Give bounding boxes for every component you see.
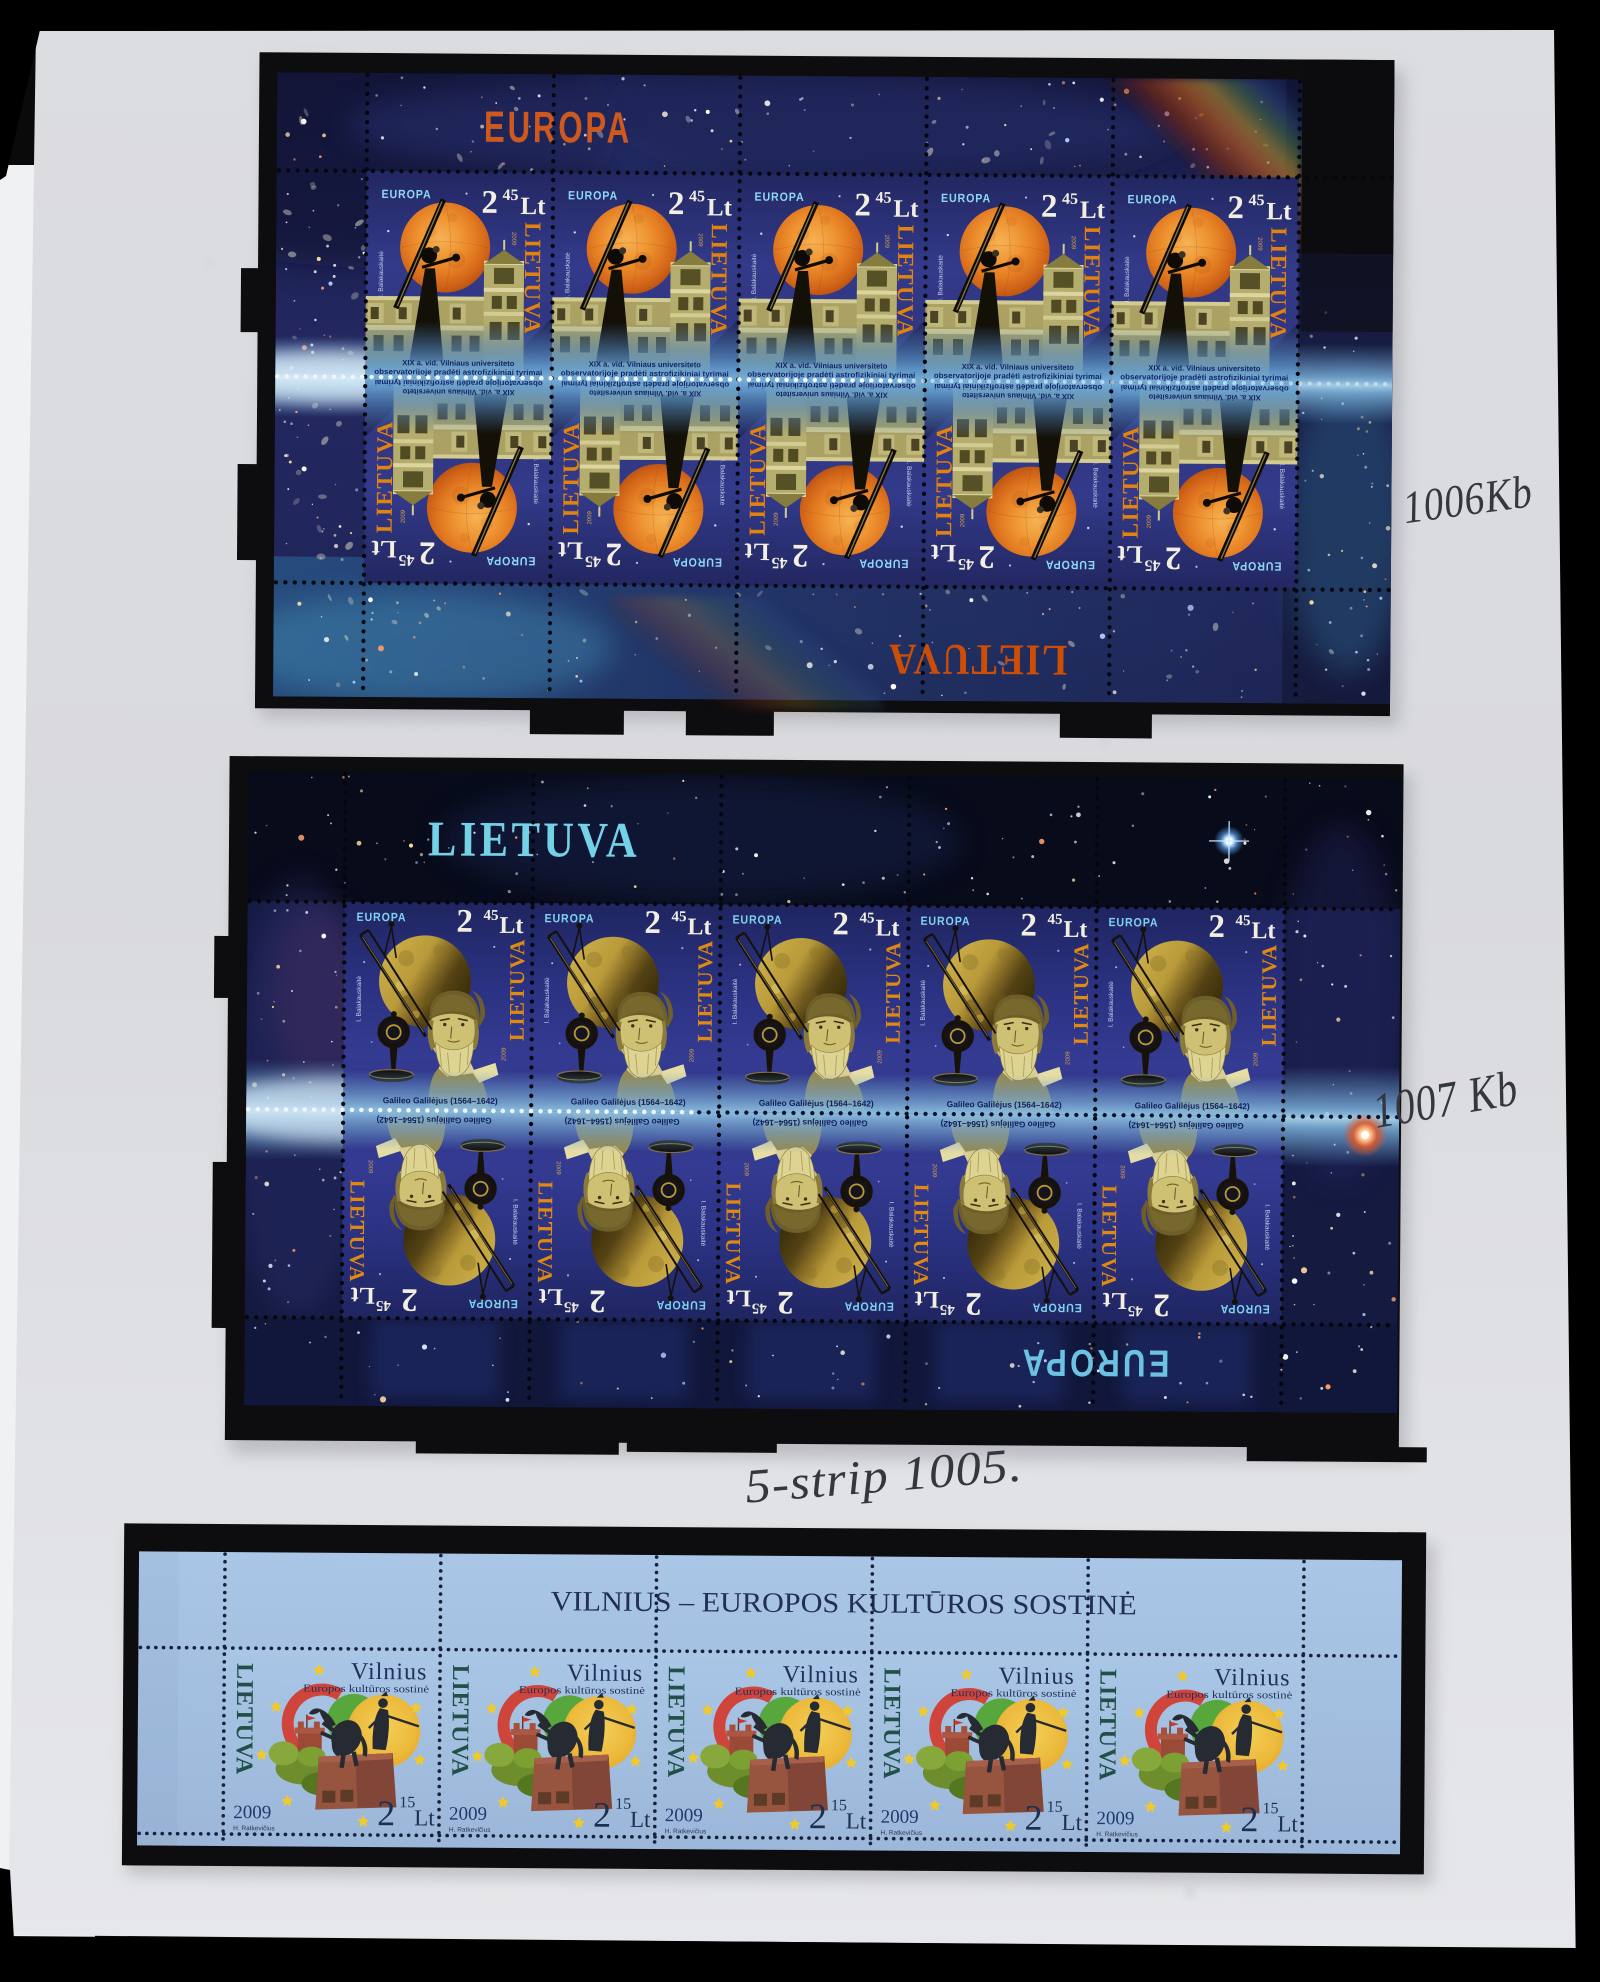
- svg-text:VILNIUS – EUROPOS KULTŪROS SOS: VILNIUS – EUROPOS KULTŪROS SOSTINĖ: [551, 1586, 1137, 1621]
- svg-text:EUROPA: EUROPA: [1019, 1341, 1169, 1384]
- svg-text:EUROPA: EUROPA: [484, 103, 632, 153]
- svg-text:LIETUVA: LIETUVA: [887, 635, 1067, 685]
